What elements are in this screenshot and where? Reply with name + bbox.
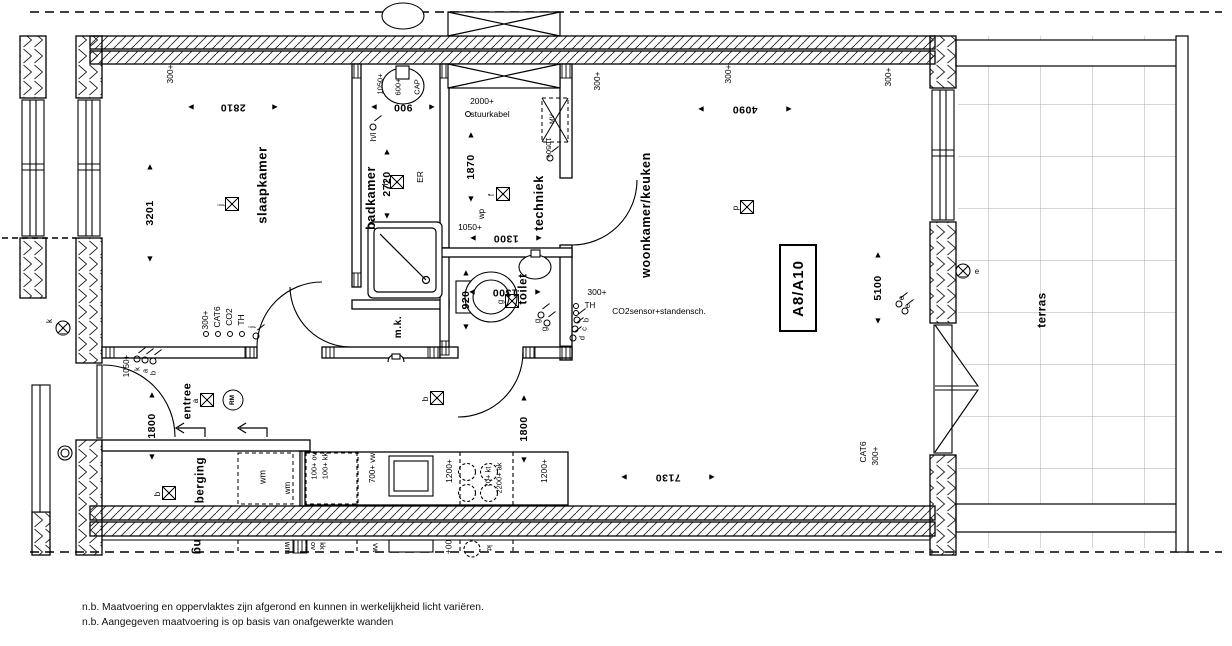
connection-dot-icon [573, 303, 579, 309]
connection-dot-icon [465, 111, 471, 117]
label-e: e [975, 268, 979, 276]
switch-icon [538, 312, 545, 319]
label-300: 300+ [587, 288, 606, 297]
dimension-1800: 1800 [147, 413, 158, 438]
room-label-slaapkamer: slaapkamer [256, 146, 269, 224]
dimension-arrow: ◄ [697, 105, 706, 114]
connection-dot-icon [227, 331, 233, 337]
ceiling-light-letter-f: f [488, 194, 496, 196]
label-th: TH [585, 302, 596, 310]
mirrored-label-wm: wm [283, 542, 291, 554]
switch-icon [142, 357, 149, 364]
door-contact [58, 446, 72, 460]
ceiling-light-icon-f [496, 187, 510, 201]
dimension-arrow: ▲ [383, 148, 392, 157]
floor-plan-canvas: A8/A10 n.b. Maatvoering en oppervlaktes … [0, 0, 1232, 646]
mirrored-label-kk: kk [318, 542, 326, 550]
ceiling-light-icon-a [200, 393, 214, 407]
dimension-1300: 1300 [493, 233, 518, 244]
dimension-arrow: ◄ [370, 103, 379, 112]
switch-icon [902, 308, 909, 315]
label-co2sensor-standensch: CO2sensor+standensch. [612, 307, 706, 316]
switch-icon [370, 124, 377, 131]
label-100-kk: 100+ kk [321, 453, 329, 479]
switch-icon [547, 155, 554, 162]
mirrored-label-kt: kt [485, 545, 493, 551]
label-b: b [149, 371, 157, 375]
dimension-900: 900 [393, 102, 412, 113]
label-c: c [580, 327, 588, 331]
label-700-vw: 700+ vw [369, 453, 377, 483]
dimension-arrow: ► [535, 234, 544, 243]
dimension-arrow: ▲ [520, 394, 529, 403]
dimension-arrow: ▼ [467, 195, 476, 204]
label-b: b [582, 318, 590, 322]
room-label-techniek: techniek [533, 175, 546, 231]
dimension-arrow: ▲ [874, 251, 883, 260]
label-300: 300+ [884, 67, 893, 86]
ceiling-light-letter-b: b [422, 397, 430, 401]
terras-area [956, 36, 1188, 552]
dimension-arrow: ◄ [469, 234, 478, 243]
dimension-3201: 3201 [145, 200, 156, 225]
label-cap: CAP [413, 79, 421, 94]
dimension-arrow: ► [428, 103, 437, 112]
dimension-1800: 1800 [519, 416, 530, 441]
terrace-door-frame [934, 325, 952, 453]
room-label-woonkamer-keuken: woonkamer/keuken [640, 152, 653, 278]
label-1200: 1200+ [540, 459, 549, 483]
front-door-swing [103, 365, 175, 437]
wall-light-k [56, 321, 70, 335]
label-2000: 2000+ [470, 97, 494, 106]
room-label-toilet: toilet [518, 273, 530, 304]
room-label-terras: terras [1037, 292, 1049, 328]
label-300: 300+ [871, 446, 880, 465]
label-2200-ak: 2200+ ak [495, 462, 503, 493]
label-g: g [541, 327, 549, 331]
unit-label-box: A8/A10 [779, 244, 817, 332]
dimension-920: 920 [461, 290, 472, 309]
dimension-5100: 5100 [873, 275, 884, 300]
ceiling-light-icon-p [740, 200, 754, 214]
switch-icon [544, 320, 551, 327]
switch-icon [896, 301, 903, 308]
ceiling-light-icon-g [505, 294, 519, 308]
smoke-detector-icon: RM [223, 390, 244, 411]
ceiling-light-icon-j [225, 197, 239, 211]
dimension-arrow: ▲ [148, 391, 157, 400]
label-300: 300+ [593, 71, 602, 90]
label-70-kt: 70+ kt [484, 467, 492, 488]
label-300: 300+ [201, 310, 210, 329]
mirrored-unit-strip [102, 540, 930, 557]
label-g: g [534, 319, 542, 323]
ceiling-light-letter-g: g [497, 300, 505, 304]
dimension-arrow: ▼ [874, 317, 883, 326]
ceiling-light-icon-b [430, 391, 444, 405]
note-line-2: n.b. Aangegeven maatvoering is op basis … [82, 617, 393, 628]
connection-dot-icon [203, 331, 209, 337]
note-line-1: n.b. Maatvoering en oppervlaktes zijn af… [82, 602, 484, 613]
label-cat6: CAT6 [859, 441, 868, 462]
dimension-arrow: ▲ [146, 163, 155, 172]
dimension-1870: 1870 [466, 154, 477, 179]
connection-dot-icon [239, 331, 245, 337]
techniek-door-swing [572, 180, 637, 245]
switch-icon [253, 333, 260, 340]
washbasin-mirrored [382, 3, 424, 29]
label-600: 600+ [394, 79, 402, 96]
shower [368, 222, 442, 298]
label-wm: wm [259, 470, 268, 484]
mirrored-label-00: 00+ [444, 540, 453, 554]
label-1050: 1050+ [376, 73, 384, 94]
label-1200: 1200+ [445, 459, 454, 483]
label-300: 300+ [166, 64, 175, 83]
dimension-arrow: ◄ [187, 103, 196, 112]
dimension-arrow: ► [271, 103, 280, 112]
mirrored-label-berging: ng [192, 539, 204, 555]
dimension-arrow: ◄ [620, 473, 629, 482]
connection-dot-icon [215, 331, 221, 337]
dimension-arrow: ▼ [383, 212, 392, 221]
label-co2: CO2 [225, 308, 234, 325]
label-mv: MV [550, 114, 557, 124]
ceiling-light-letter-h: h [382, 181, 390, 185]
label-100-ov: 100+ ov [310, 453, 318, 480]
dimension-arrow: ▲ [467, 131, 476, 140]
ceiling-light-letter-b: b [154, 492, 162, 496]
dimension-arrow: ▼ [462, 323, 471, 332]
room-label-badkamer: badkamer [365, 166, 378, 230]
label-wm: wm [284, 482, 292, 494]
label-th: TH [237, 314, 246, 325]
ceiling-light-icon-b [162, 486, 176, 500]
ceiling-light-icon-h [390, 175, 404, 189]
duct-shaft [448, 12, 560, 88]
label-1050: 1050+ [123, 355, 131, 377]
label-er: ER [416, 171, 425, 183]
unit-label: A8/A10 [790, 260, 807, 317]
label-wp: wp [478, 209, 486, 219]
switch-icon [150, 358, 157, 365]
dimension-arrow: ▼ [148, 453, 157, 462]
dimension-2810: 2810 [220, 102, 245, 113]
dimension-arrow: ► [534, 288, 543, 297]
bathroom-door-swing [290, 287, 352, 347]
ceiling-light-letter-p: p [732, 206, 740, 210]
switch-icon [134, 356, 141, 363]
bedroom-door-swing [257, 282, 322, 347]
room-label-mk: m.k. [394, 316, 404, 338]
dimension-7130: 7130 [655, 472, 680, 483]
ceiling-light-letter-j: j [217, 204, 225, 206]
label-d: d [578, 336, 586, 340]
smoke-detector-label: RM [229, 395, 236, 405]
switch-icon [570, 335, 577, 342]
room-label-berging: berging [195, 457, 207, 503]
wall-light-e [956, 264, 970, 278]
front-door-leaf [97, 365, 102, 438]
mirrored-label-vw: vw [371, 543, 379, 553]
dimension-arrow: ▼ [146, 255, 155, 264]
dimension-4090: 4090 [732, 104, 757, 115]
dimension-arrow: ▲ [462, 269, 471, 278]
entrance-side-panel [32, 385, 50, 512]
dimension-arrow: ► [708, 473, 717, 482]
dimension-arrow: ▼ [520, 456, 529, 465]
mirrored-label-ov: ov [309, 542, 317, 550]
label-cat6: CAT6 [213, 306, 222, 327]
label-stuurkabel: stuurkabel [470, 110, 509, 119]
ceiling-light-letter-a: a [192, 399, 200, 403]
label-h-l: h/l [370, 133, 378, 141]
dimension-arrow: ► [785, 105, 794, 114]
storage-slide-arrows [176, 423, 267, 437]
connection-dot-icon [573, 310, 579, 316]
toilet-door-swing [458, 352, 523, 417]
label-j: j [248, 326, 256, 328]
label-k: k [46, 319, 54, 323]
label-300: 300+ [724, 64, 733, 83]
label-1050: 1050+ [458, 223, 482, 232]
